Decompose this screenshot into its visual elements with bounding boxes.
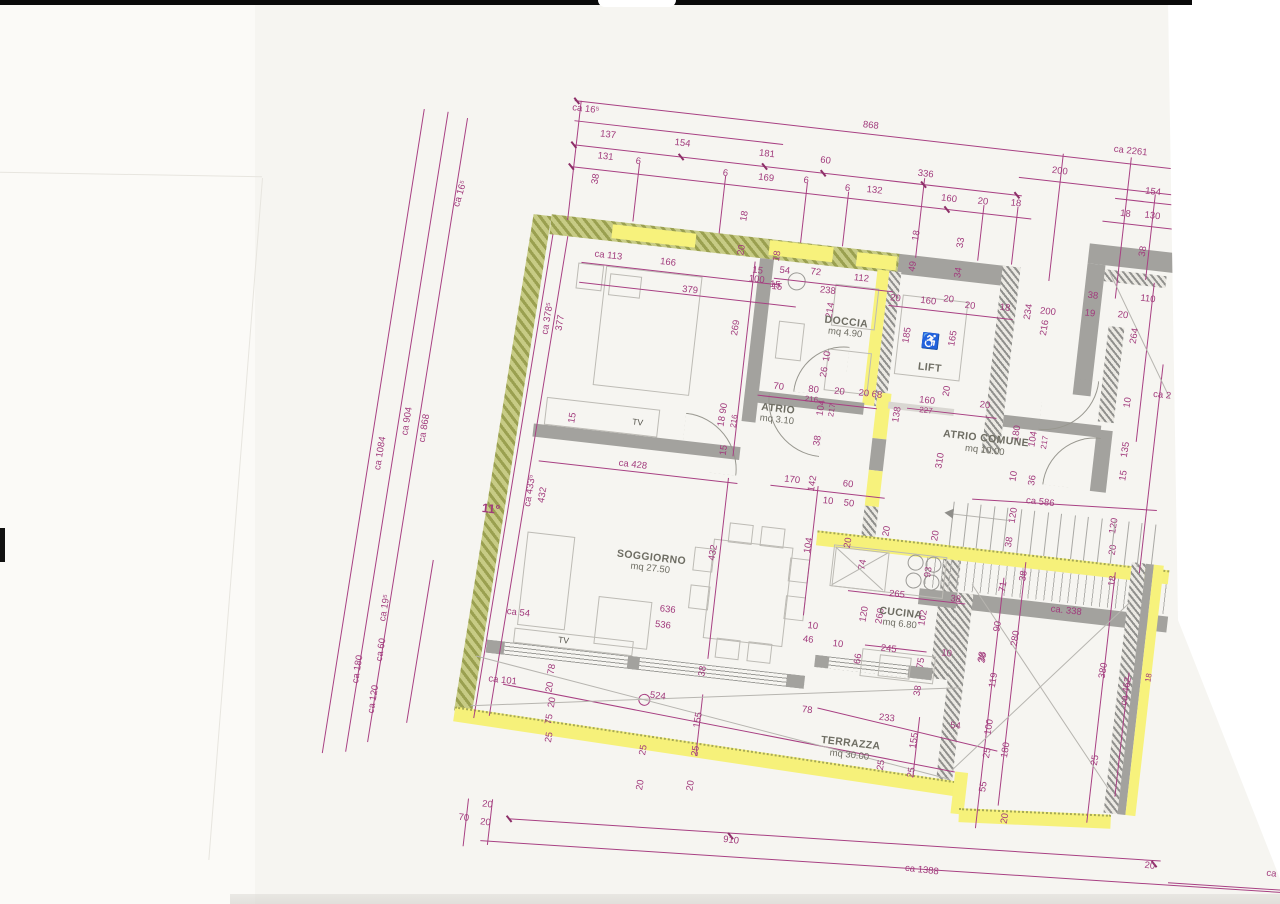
dimension-label: ca 16⁵ xyxy=(572,103,600,116)
dimension-label: 135 xyxy=(1120,441,1132,458)
stair-tread xyxy=(962,503,968,547)
stair-tread xyxy=(1069,515,1075,559)
stair-tread xyxy=(1096,518,1102,562)
dimension-label: 120 xyxy=(1008,507,1020,524)
dimension-label: 20 xyxy=(834,387,846,398)
dimension-label: 170 xyxy=(784,475,801,486)
dimension-label: 75 xyxy=(544,713,555,725)
dimension-label: 38 xyxy=(950,594,962,605)
stair-tread xyxy=(1083,517,1089,561)
dimension-label: 200 xyxy=(1051,166,1068,177)
dimension-label: 234 xyxy=(1023,303,1035,320)
wall-segment xyxy=(1098,326,1125,423)
stair-tread xyxy=(1029,511,1035,555)
dimension-label: 38 xyxy=(1138,245,1149,257)
dimension-label: 180 xyxy=(1000,741,1012,758)
dimension-label: 25 xyxy=(876,759,887,771)
wall-segment xyxy=(814,655,829,669)
dimension-label: ca 904 xyxy=(400,406,414,436)
stair-direction-arrow xyxy=(944,508,954,519)
dimension-label: 38 xyxy=(1018,570,1029,582)
dimension-label: 280 xyxy=(1010,630,1022,647)
dimension-label: 6 xyxy=(844,184,850,194)
dimension-label: 20 xyxy=(890,293,902,304)
wall-segment xyxy=(627,656,640,670)
dimension-label: 25 xyxy=(544,731,555,743)
dimension-label: 6 xyxy=(803,176,809,186)
dimension-label: 238 xyxy=(819,285,836,296)
plan: 868ca 2261ca 16⁵137154181603362001316616… xyxy=(233,40,1280,904)
dimension-line xyxy=(480,840,1280,894)
furniture-outline xyxy=(775,321,805,362)
stair-tread xyxy=(976,505,982,549)
dimension-label: 142 xyxy=(807,475,819,492)
dimension-label: 20 xyxy=(930,530,941,542)
dimension-label: 70 xyxy=(773,382,785,393)
wheelchair-icon: ♿ xyxy=(921,333,941,350)
dimension-label: 18 xyxy=(999,303,1011,314)
dimension-label: 38 xyxy=(697,665,708,677)
dimension-label: ca 113 xyxy=(594,250,623,263)
dimension-label: 15 xyxy=(719,444,730,456)
dimension-label: 132 xyxy=(866,185,883,196)
dimension-label: ca 54 xyxy=(506,607,530,619)
dimension-label: 18 xyxy=(772,250,783,262)
dimension-label: 49 xyxy=(908,260,919,272)
dimension-label: 38 xyxy=(812,435,823,447)
dimension-label: 10 xyxy=(1008,470,1019,482)
dimension-line xyxy=(575,100,1191,171)
dimension-label: 78 xyxy=(547,663,558,675)
dimension-label: 130 xyxy=(1144,211,1161,222)
dimension-label: 38 xyxy=(1087,291,1099,302)
wall-segment xyxy=(869,438,887,471)
wall-segment xyxy=(486,640,505,655)
dimension-label: 20 68 xyxy=(858,388,883,400)
stair-tread xyxy=(1123,521,1129,565)
dimension-label: 524 xyxy=(649,691,666,702)
furniture-outline xyxy=(746,641,772,664)
dimension-label: 54 xyxy=(779,266,791,277)
dimension-label: 154 xyxy=(1145,187,1162,198)
dimension-label: 18 xyxy=(1010,198,1022,209)
room-area: mq 10.00 xyxy=(964,444,1004,458)
dimension-label: 6 xyxy=(635,157,641,167)
dimension-line xyxy=(572,166,1031,219)
dimension-label: 102 xyxy=(917,609,929,626)
door-arc xyxy=(1042,432,1101,491)
dimension-label: 165 xyxy=(947,330,959,347)
dimension-label: 216 xyxy=(729,414,739,428)
dimension-label: 20 xyxy=(635,779,646,791)
scanned-paper-sheet: 868ca 2261ca 16⁵137154181603362001316616… xyxy=(0,0,1280,904)
dimension-label: 15 xyxy=(567,412,578,424)
wall-segment xyxy=(1073,263,1106,396)
furniture-outline xyxy=(715,638,741,661)
stair-tread xyxy=(1043,512,1049,556)
dimension-label: 227 xyxy=(919,406,933,415)
furniture-outline xyxy=(878,654,912,679)
dimension-label: 160 xyxy=(941,193,958,204)
dimension-label: 90 xyxy=(992,620,1003,632)
dimension-label: 20 xyxy=(736,244,747,256)
dimension-label: ca 868 xyxy=(418,413,432,443)
dimension-label: ca 60 xyxy=(375,637,388,661)
dimension-line xyxy=(1102,221,1177,230)
dimension-label: 245 xyxy=(880,644,897,655)
dimension-line xyxy=(575,144,1022,196)
dimension-label: 169 xyxy=(758,173,775,184)
annotation-label: TV xyxy=(558,635,570,645)
scan-shadow xyxy=(230,894,1280,904)
scanner-edge-mark xyxy=(0,528,5,562)
dimension-label: 100 xyxy=(983,718,995,735)
dimension-label: 112 xyxy=(853,273,869,284)
dimension-label: 93 xyxy=(923,566,934,578)
dimension-line xyxy=(972,499,1157,511)
dimension-label: 137 xyxy=(600,129,617,140)
dimension-label: 216 xyxy=(1039,319,1051,336)
dimension-label: 166 xyxy=(660,257,677,268)
dimension-label: 50 xyxy=(843,498,855,509)
room-area: mq 6.80 xyxy=(882,618,917,631)
dimension-label: ca 2 xyxy=(1153,390,1172,401)
dimension-label: 74 xyxy=(857,559,868,571)
stair-tread xyxy=(1150,525,1156,569)
dimension-label: 536 xyxy=(654,620,671,631)
furniture-outline xyxy=(593,596,652,650)
dimension-label: 15 xyxy=(771,282,783,293)
dimension-label: 20 xyxy=(547,696,558,708)
dimension-label: 10 xyxy=(832,639,844,650)
dimension-label: 78 xyxy=(801,705,813,716)
dimension-label: 138 xyxy=(891,406,903,423)
dimension-label: 38 xyxy=(977,651,988,663)
dimension-label: 155 xyxy=(692,711,704,728)
dimension-label: 131 xyxy=(597,151,614,162)
dimension-label: 25 xyxy=(906,767,917,779)
dimension-label: 868 xyxy=(862,120,879,131)
annotation-label: TV xyxy=(632,417,644,427)
dimension-label: 265 xyxy=(888,589,905,600)
dimension-label: 20 xyxy=(482,799,494,810)
dimension-label: 264 xyxy=(1129,327,1141,344)
dimension-label: 18 xyxy=(1107,575,1118,587)
furniture-outline xyxy=(759,526,785,549)
scanner-edge-notch xyxy=(598,0,676,7)
dimension-label: 20 xyxy=(545,681,556,693)
dimension-label: 336 xyxy=(917,169,934,180)
dimension-label: 18 xyxy=(1120,209,1132,220)
dimension-label: ca 1388 xyxy=(904,864,939,877)
dimension-line xyxy=(1186,167,1193,175)
dimension-label: 60 xyxy=(842,479,854,490)
stair-tread xyxy=(989,506,995,550)
dimension-label: 120 xyxy=(858,606,870,623)
room-area: mq 30.00 xyxy=(829,748,869,762)
dimension-label: 20 xyxy=(942,385,953,397)
dimension-label: 217 xyxy=(1040,435,1050,449)
dimension-label: ca 2261 xyxy=(1113,145,1148,158)
dimension-label: 18 xyxy=(911,230,922,242)
dimension-label: 38 xyxy=(913,685,924,697)
dimension-label: 310 xyxy=(934,452,946,469)
dimension-label: 380 xyxy=(1098,662,1110,679)
dimension-label: 10 xyxy=(822,496,834,507)
dimension-label: 104 xyxy=(803,537,815,554)
dimension-label: 54 xyxy=(950,721,962,732)
dimension-line xyxy=(951,602,1130,771)
dimension-line xyxy=(842,192,849,247)
dimension-label: 72 xyxy=(810,267,822,278)
dimension-label: 181 xyxy=(758,149,775,160)
dimension-label: 20 xyxy=(964,301,976,312)
room-area: mq 3.10 xyxy=(759,413,794,426)
dimension-label: 34 xyxy=(953,267,964,279)
furniture-outline xyxy=(728,522,754,545)
dimension-label: 20 xyxy=(979,400,991,411)
dimension-label: 19 xyxy=(1084,308,1096,319)
dimension-label: 71 xyxy=(998,581,1009,593)
dimension-line xyxy=(915,178,925,258)
dimension-label: 185 xyxy=(901,327,913,344)
wall-segment xyxy=(786,674,805,689)
dimension-label: 55 xyxy=(978,781,989,793)
dimension-label: 33 xyxy=(956,237,967,249)
furniture-outline xyxy=(688,584,711,610)
dimension-label: 15 xyxy=(1118,470,1129,482)
floor-plan-scan: 868ca 2261ca 16⁵137154181603362001316616… xyxy=(0,0,1280,904)
dimension-label: 160 xyxy=(920,296,937,307)
dimension-label: 38 xyxy=(1004,536,1015,548)
dimension-label: 25 xyxy=(690,745,701,757)
dimension-label: 379 xyxy=(682,285,699,296)
dimension-label: 20 xyxy=(1000,812,1011,824)
room-area: mq 27.50 xyxy=(630,562,670,576)
dimension-label: 36 xyxy=(1027,474,1038,486)
dimension-label: 66 xyxy=(853,653,864,665)
dimension-label: 155 xyxy=(908,732,920,749)
dimension-label: 11° xyxy=(481,502,501,516)
dimension-label: ca 16⁵ xyxy=(452,179,469,208)
dimension-label: 25 xyxy=(1090,754,1101,766)
room-area: mq 4.90 xyxy=(828,327,863,340)
dimension-label: 636 xyxy=(659,604,676,615)
dimension-label: 154 xyxy=(674,138,691,149)
dimension-label: 432 xyxy=(537,486,549,503)
dimension-label: 60 xyxy=(820,156,832,167)
dimension-label: ca 586 xyxy=(1026,496,1055,509)
dimension-label: 20 xyxy=(480,817,492,828)
dimension-label: 18 xyxy=(1144,673,1153,683)
dimension-label: ca 19⁵ xyxy=(378,594,392,622)
dimension-label: ca 1084 xyxy=(373,436,388,471)
dimension-label: 15 xyxy=(752,266,764,277)
dimension-label: 20 xyxy=(1108,544,1119,556)
dimension-label: ca 120 xyxy=(367,684,381,714)
dimension-label: ca 433⁵ xyxy=(523,474,538,508)
dimension-label: 20 xyxy=(943,294,955,305)
dimension-line xyxy=(406,560,434,723)
dimension-label: 200 xyxy=(1039,306,1056,317)
dimension-label: 217 xyxy=(827,403,837,417)
dimension-label: 26 xyxy=(819,366,830,378)
dimension-label: 269 xyxy=(730,319,742,336)
paper-left-margin xyxy=(0,0,255,904)
dimension-label: 10 xyxy=(822,350,833,362)
dimension-label: 233 xyxy=(878,713,895,724)
dimension-label: 20 xyxy=(843,537,854,549)
dimension-label: 18 xyxy=(739,210,750,222)
room-label: LIFT xyxy=(917,361,942,374)
dimension-label: ca 393 xyxy=(1266,869,1280,882)
dimension-label: 20 xyxy=(881,525,892,537)
dimension-label: 20 xyxy=(1144,861,1156,872)
dimension-label: 10 xyxy=(1123,397,1134,409)
dimension-label: ca 101 xyxy=(488,674,517,687)
dimension-label: 20 xyxy=(685,780,696,792)
stair-tread xyxy=(1056,514,1062,558)
dimension-label: 70 xyxy=(458,813,470,824)
dimension-label: 75 xyxy=(916,657,927,669)
dimension-label: ca 180 xyxy=(351,654,365,684)
dimension-label: 432 xyxy=(707,544,719,561)
dimension-label: 119 xyxy=(988,672,1000,689)
dimension-label: 10 xyxy=(807,621,819,632)
dimension-label: 25 xyxy=(982,747,993,759)
furniture-outline xyxy=(783,595,806,621)
dimension-label: 46 xyxy=(802,635,814,646)
dimension-label: 25 xyxy=(638,744,649,756)
dimension-label: 18 90 xyxy=(716,402,729,427)
dimension-label: 910 xyxy=(723,835,740,846)
dimension-label: 38 xyxy=(590,173,601,185)
dimension-label: 377 xyxy=(554,314,566,331)
dimension-label: 20 xyxy=(1117,310,1129,321)
furniture-outline xyxy=(575,263,604,292)
dimension-label: 6 xyxy=(722,169,728,179)
wall-segment xyxy=(865,470,883,507)
dimension-label: 10 xyxy=(941,648,953,659)
dimension-label: 110 xyxy=(1140,294,1156,305)
dimension-label: 20 xyxy=(977,197,989,208)
scanner-edge-strip xyxy=(0,0,1192,5)
dimension-line xyxy=(567,101,582,220)
dimension-label: ca 378⁵ xyxy=(541,302,556,336)
